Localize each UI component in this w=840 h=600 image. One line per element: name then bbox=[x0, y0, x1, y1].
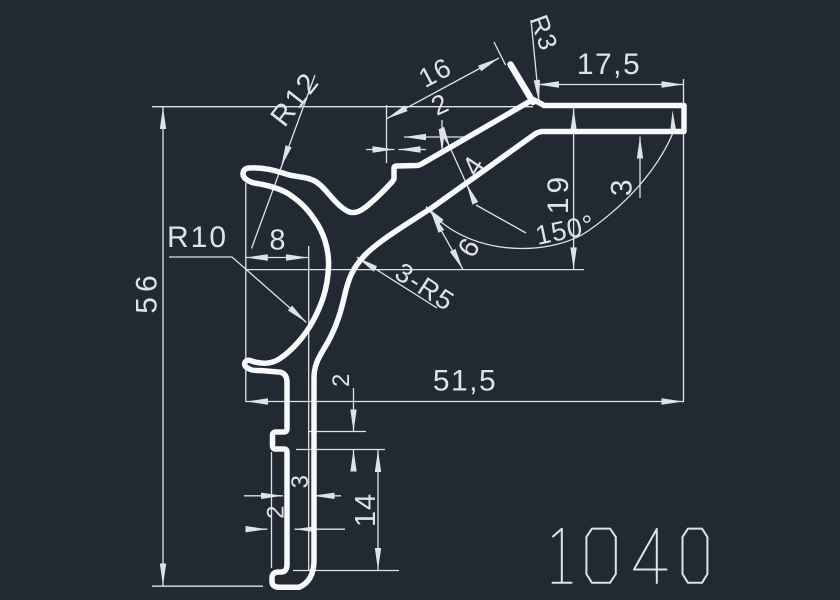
svg-text:51,5: 51,5 bbox=[433, 365, 497, 398]
svg-text:3: 3 bbox=[287, 474, 314, 489]
svg-text:17,5: 17,5 bbox=[577, 48, 641, 81]
svg-text:8: 8 bbox=[269, 225, 287, 257]
svg-text:14: 14 bbox=[350, 493, 382, 527]
svg-text:56: 56 bbox=[131, 270, 164, 313]
svg-text:R10: R10 bbox=[167, 221, 228, 254]
svg-text:2: 2 bbox=[328, 372, 355, 387]
svg-text:3: 3 bbox=[606, 178, 639, 196]
svg-text:19: 19 bbox=[542, 173, 575, 214]
svg-text:2: 2 bbox=[262, 504, 289, 519]
